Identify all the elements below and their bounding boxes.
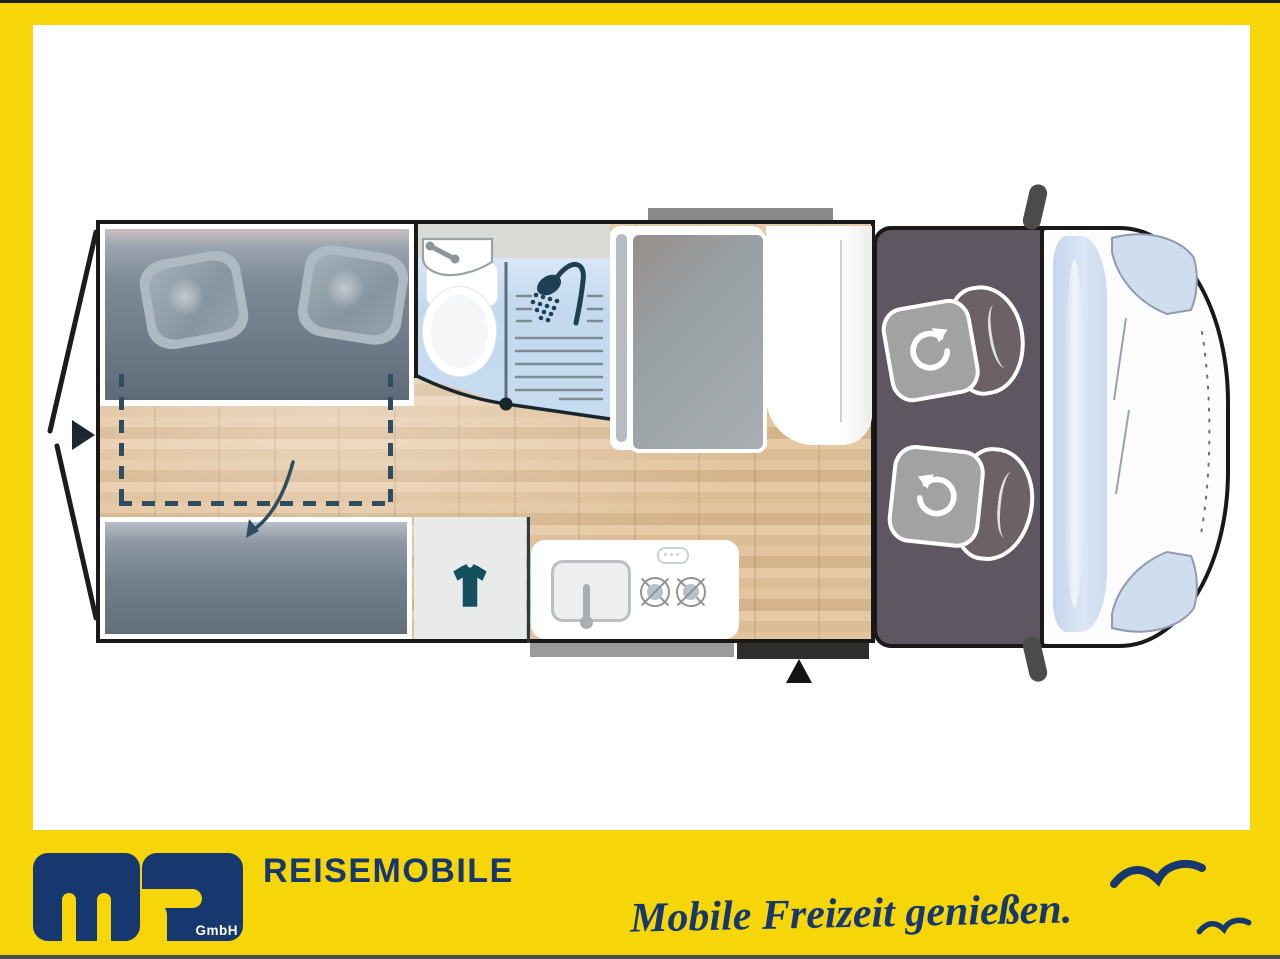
seagull-icon-large <box>1108 856 1208 892</box>
brand-slogan: Mobile Freizeit genießen. <box>630 885 1073 942</box>
washbasin <box>423 239 492 275</box>
hood-seam-dashed <box>1201 332 1209 534</box>
logo-m-slot <box>97 893 111 941</box>
logo-letter-s: GmbH <box>142 853 243 941</box>
headlight-bottom <box>1112 552 1197 632</box>
seagull-icon-small <box>1196 914 1252 938</box>
windshield-wipers <box>1114 318 1129 494</box>
logo-s-notch <box>142 903 167 941</box>
logo-letter-m <box>33 853 140 941</box>
shower-drain-lines <box>516 296 602 399</box>
rear-door-arrow-icon <box>72 420 95 450</box>
shower-icon <box>531 264 584 323</box>
headlight-top <box>1112 234 1197 314</box>
entry-arrow-icon <box>786 659 812 683</box>
advert-page: GmbH REISEMOBILE Mobile Freizeit genieße… <box>0 0 1280 959</box>
company-suffix: GmbH <box>196 923 239 938</box>
rear-doors-open <box>50 232 96 618</box>
floorplan-lineart <box>0 0 1280 959</box>
brand-wordmark: REISEMOBILE <box>263 852 514 891</box>
logo-m-slot <box>62 893 76 941</box>
door-pivot-dot <box>500 398 513 411</box>
bed-fold-arrow-icon <box>246 462 293 538</box>
